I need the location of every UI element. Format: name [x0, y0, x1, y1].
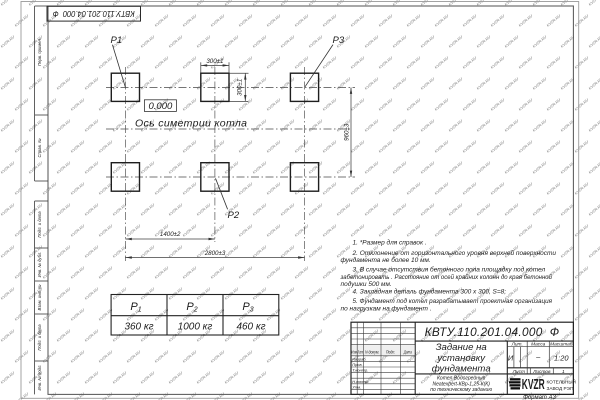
svg-text:3. В случае отсутствия бетонн: 3. В случае отсутствия бетонного пола пл…: [353, 266, 546, 274]
svg-text:Пров.: Пров.: [352, 362, 363, 367]
svg-text:Подп. и дата: Подп. и дата: [37, 211, 42, 238]
svg-text:Листов: Листов: [532, 369, 551, 375]
svg-text:1000 кг: 1000 кг: [178, 321, 213, 332]
svg-text:Дата: Дата: [403, 350, 412, 355]
svg-text:1:20: 1:20: [554, 354, 569, 363]
svg-text:5. Фундамент под котел разраб: 5. Фундамент под котел разрабатывает про…: [353, 297, 553, 305]
svg-text:по техническому заданию: по техническому заданию: [430, 387, 492, 393]
svg-text:1: 1: [562, 369, 565, 375]
svg-text:Разраб.: Разраб.: [352, 356, 366, 361]
svg-text:Н.контр.: Н.контр.: [352, 379, 369, 384]
svg-text:Задание на: Задание на: [436, 342, 487, 353]
svg-text:KVZR: KVZR: [522, 375, 545, 392]
svg-text:И: И: [508, 354, 514, 363]
svg-text:Подп. и дата: Подп. и дата: [37, 324, 42, 351]
svg-text:установку: установку: [436, 353, 486, 364]
svg-text:460 кг: 460 кг: [236, 321, 265, 332]
svg-text:подушки 500 мм.: подушки 500 мм.: [341, 280, 392, 288]
svg-text:1. *Размер для справок .: 1. *Размер для справок .: [353, 239, 427, 247]
svg-text:Изм: Изм: [351, 350, 357, 355]
svg-text:2800±3: 2800±3: [204, 250, 226, 257]
svg-text:Р2: Р2: [228, 210, 240, 221]
svg-text:0.000: 0.000: [149, 101, 173, 112]
svg-text:Взам. инв. №: Взам. инв. №: [37, 284, 42, 310]
svg-text:Т.контр.: Т.контр.: [352, 368, 368, 373]
svg-text:Ось симетрии котла: Ось симетрии котла: [135, 117, 247, 129]
svg-text:360 кг: 360 кг: [124, 321, 153, 332]
svg-text:Р3: Р3: [333, 35, 345, 46]
svg-text:Лит.: Лит.: [511, 342, 523, 348]
svg-text:фундамента: фундамента: [432, 364, 491, 375]
svg-text:–: –: [535, 353, 541, 362]
svg-text:забетонировать . Расстояние о: забетонировать . Расстояние от осей край…: [340, 273, 553, 281]
svg-text:300±1: 300±1: [237, 79, 244, 96]
svg-text:N докум.: N докум.: [365, 350, 380, 355]
svg-text:4. Закладная деталь фундамент: 4. Закладная деталь фундамента 300 х 300…: [353, 288, 507, 296]
svg-text:Перв. примен.: Перв. примен.: [37, 38, 42, 66]
svg-text:Инв. № дубл.: Инв. № дубл.: [37, 252, 42, 278]
svg-text:960±3: 960±3: [343, 123, 350, 141]
svg-text:КОТЕЛЬНЫЙ: КОТЕЛЬНЫЙ: [547, 378, 576, 385]
svg-text:Масштаб: Масштаб: [550, 342, 573, 348]
svg-text:КВТУ.110.201.04.000 Ф: КВТУ.110.201.04.000 Ф: [425, 325, 560, 339]
svg-text:по нагрузкам на фундамент .: по нагрузкам на фундамент .: [341, 304, 432, 312]
svg-text:300±1: 300±1: [206, 58, 223, 65]
svg-text:Справ. №: Справ. №: [37, 138, 42, 157]
svg-text:ЗАВОД РЭП: ЗАВОД РЭП: [547, 386, 574, 391]
svg-text:Масса: Масса: [531, 342, 546, 348]
svg-text:Подп.: Подп.: [386, 350, 396, 355]
svg-text:1400±2: 1400±2: [160, 231, 181, 238]
svg-text:Утв.: Утв.: [352, 385, 361, 390]
svg-text:2. Отклонение от горизонтальн: 2. Отклонение от горизонтального уровня …: [352, 249, 557, 257]
svg-text:Лист: Лист: [357, 350, 363, 355]
svg-text:Инв. № подл.: Инв. № подл.: [37, 365, 42, 391]
svg-text:фундамента не более 10 мм.: фундамента не более 10 мм.: [341, 256, 432, 264]
svg-text:КВТУ.110.201.04.000 Ф: КВТУ.110.201.04.000 Ф: [53, 9, 135, 18]
svg-text:Р1: Р1: [111, 35, 123, 46]
svg-text:Лист: Лист: [512, 369, 525, 375]
svg-text:Формат А3: Формат А3: [523, 395, 556, 400]
